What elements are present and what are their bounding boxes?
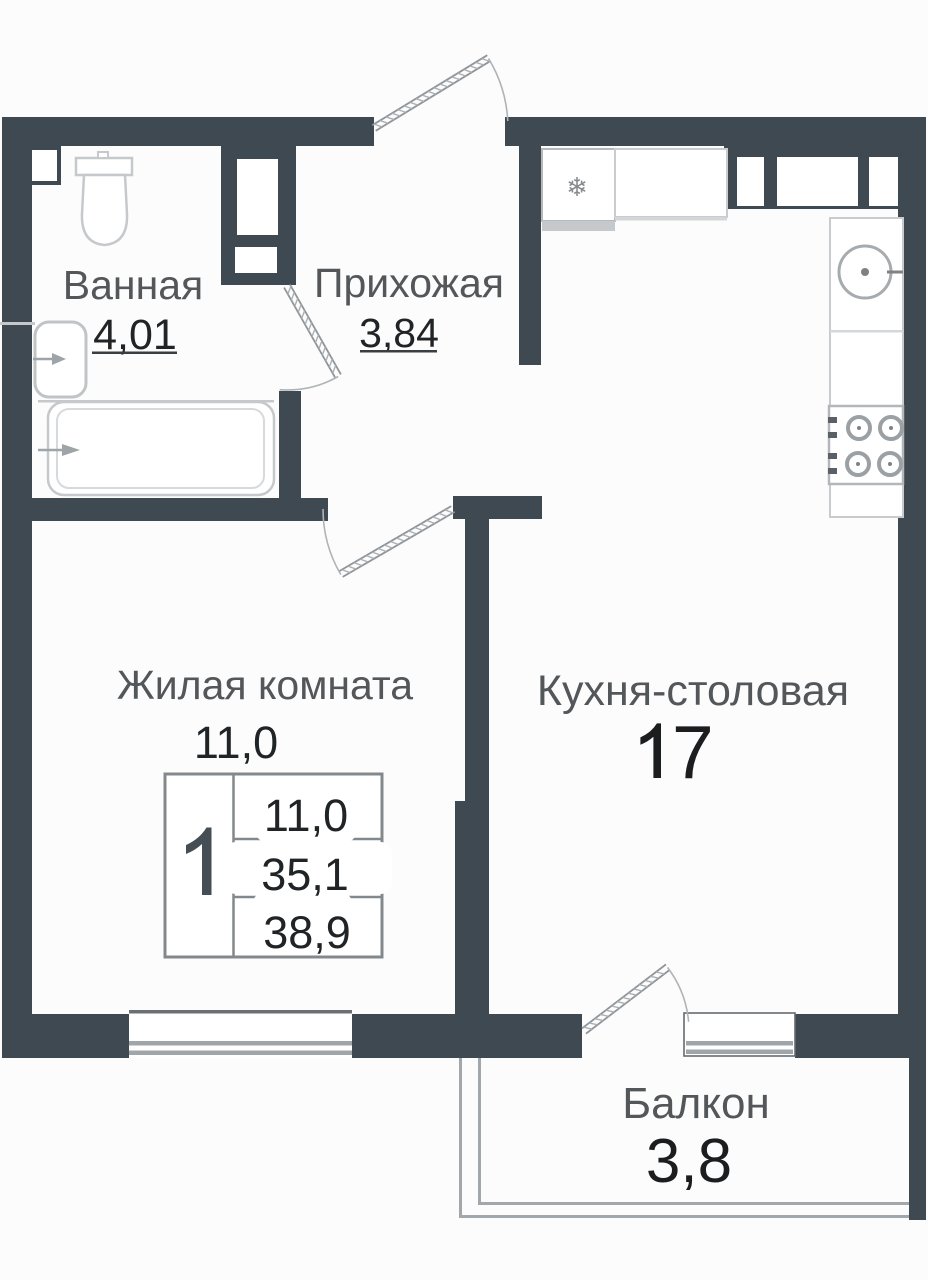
svg-text:Кухня-столовая: Кухня-столовая (537, 667, 849, 715)
svg-text:35,1: 35,1 (261, 849, 349, 900)
svg-text:11,0: 11,0 (264, 790, 348, 841)
svg-text:3,8: 3,8 (646, 1127, 732, 1196)
svg-text:Прихожая: Прихожая (314, 260, 504, 306)
svg-text:❄: ❄ (566, 172, 588, 202)
svg-text:Ванная: Ванная (63, 262, 203, 308)
svg-text:3,84: 3,84 (359, 310, 439, 356)
svg-text:Жилая комната: Жилая комната (117, 662, 413, 708)
svg-text:11,0: 11,0 (194, 717, 278, 768)
svg-text:38,9: 38,9 (263, 907, 351, 958)
svg-text:7: 7 (672, 710, 714, 794)
svg-text:Балкон: Балкон (622, 1079, 770, 1128)
